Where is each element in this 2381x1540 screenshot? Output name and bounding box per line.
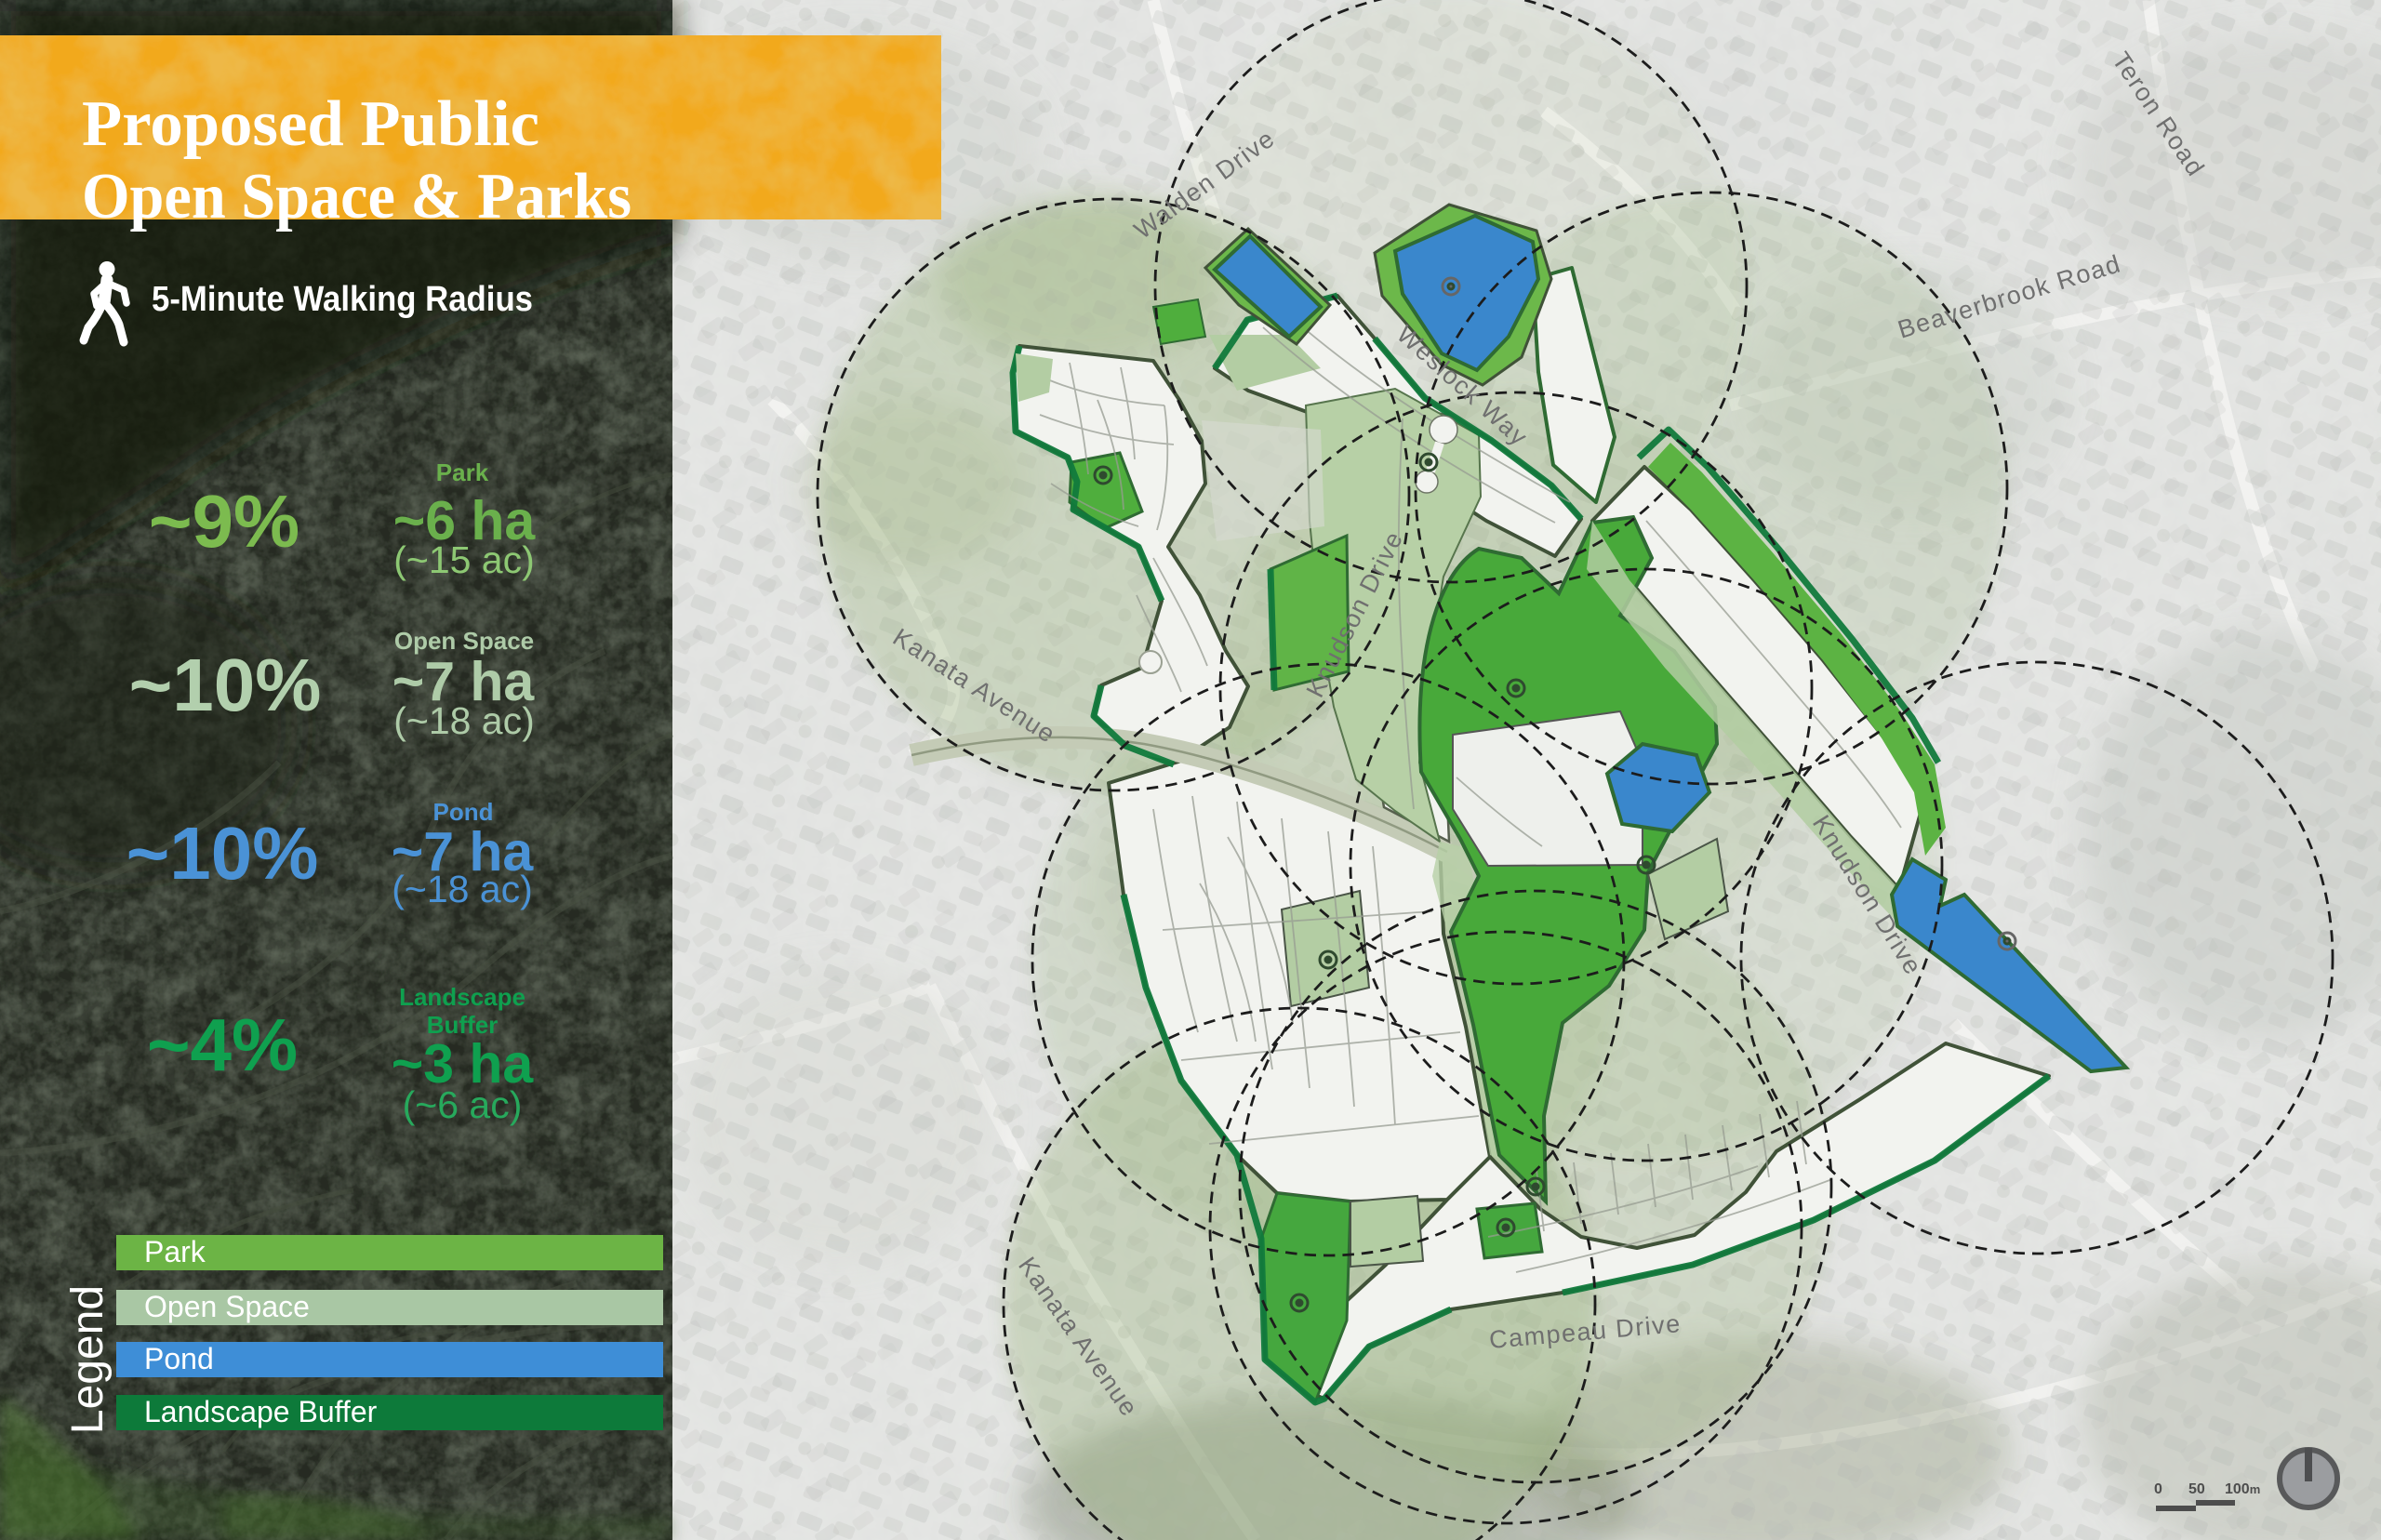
svg-text:Open Space & Parks: Open Space & Parks [82,161,632,232]
svg-text:100m: 100m [2225,1481,2260,1497]
svg-text:~9%: ~9% [149,480,299,563]
svg-text:(~18 ac): (~18 ac) [393,699,535,742]
svg-text:0: 0 [2154,1481,2162,1497]
svg-text:Landscape: Landscape [399,983,525,1011]
svg-text:5-Minute Walking Radius: 5-Minute Walking Radius [152,280,533,319]
svg-text:(~18 ac): (~18 ac) [392,868,533,910]
svg-text:(~6 ac): (~6 ac) [403,1083,523,1126]
svg-text:Park: Park [436,458,489,486]
svg-text:Proposed Public: Proposed Public [82,88,539,160]
svg-text:Legend: Legend [63,1285,113,1434]
svg-text:Landscape Buffer: Landscape Buffer [144,1395,378,1428]
svg-text:~10%: ~10% [126,812,319,895]
svg-text:(~15 ac): (~15 ac) [393,538,535,581]
svg-text:Pond: Pond [144,1342,214,1375]
svg-text:~4%: ~4% [147,1003,298,1086]
svg-text:Open Space: Open Space [144,1290,310,1323]
svg-text:50: 50 [2188,1481,2205,1497]
svg-text:Park: Park [144,1235,206,1268]
svg-text:~10%: ~10% [129,644,322,726]
